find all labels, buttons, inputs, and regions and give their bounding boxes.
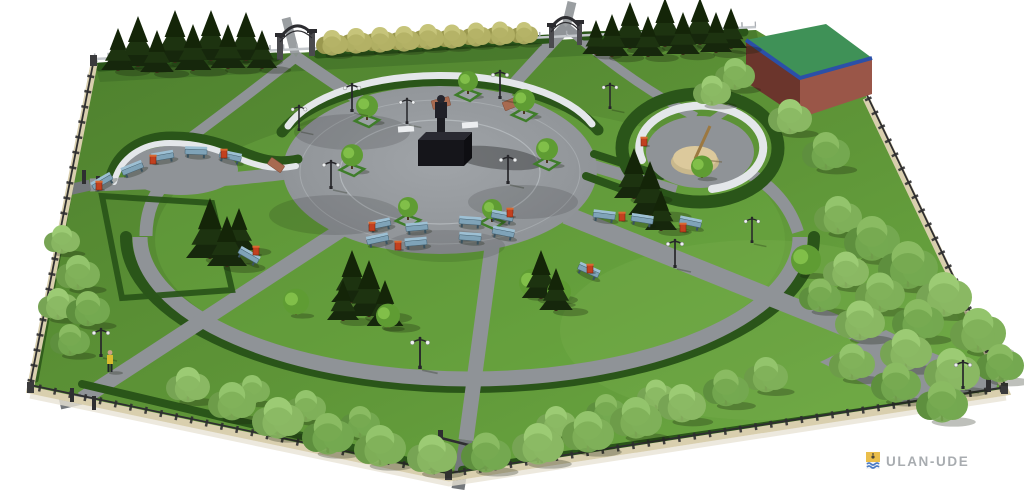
lamp-finial (351, 83, 354, 86)
tree-foliage (807, 287, 832, 312)
conifer-foliage (604, 14, 621, 36)
tree-foliage (668, 394, 697, 423)
conifer-foliage (219, 24, 237, 47)
tree-foliage (75, 300, 101, 326)
tree-foliage (262, 407, 293, 438)
east-gate-post (986, 378, 991, 392)
conifer-foliage (655, 0, 674, 23)
tree-foliage (845, 311, 875, 341)
conifer-foliage (675, 12, 692, 34)
tree-foliage (701, 83, 724, 106)
lamp-finial (499, 70, 502, 73)
tree-foliage (620, 407, 651, 438)
bin-lid (586, 264, 593, 266)
lamp-globe (304, 108, 307, 111)
tree-foliage (986, 354, 1015, 383)
lamp-globe (357, 86, 361, 90)
lamp-globe (615, 86, 618, 89)
lamp-globe (106, 331, 110, 335)
lamp-finial (330, 160, 333, 163)
pedestal-top (418, 132, 472, 140)
bin-lid (95, 181, 102, 183)
corner-pillar-north (90, 55, 97, 66)
lamp-finial (674, 239, 677, 242)
lamp-finial (100, 328, 103, 331)
conifer-foliage (128, 16, 148, 42)
conifer-foliage (589, 20, 603, 38)
statue-head (437, 95, 445, 103)
tree-foliage (322, 36, 341, 55)
tree-foliage (175, 376, 201, 402)
bench-leg (594, 217, 596, 221)
lamp-globe (399, 101, 402, 104)
bench-leg (203, 155, 205, 159)
tree-foliage (58, 332, 82, 356)
pedestal-front (418, 140, 464, 166)
bench-leg (461, 240, 463, 244)
conifer-foliage (691, 0, 709, 22)
lamp-globe (680, 242, 684, 246)
bin-lid (506, 208, 513, 210)
tree-foliage (812, 142, 841, 171)
bin-body (369, 223, 375, 231)
topiary-highlight (285, 293, 298, 306)
tree-foliage (753, 366, 779, 392)
lamp-globe (499, 158, 503, 162)
lamp-globe (322, 163, 326, 167)
bin-lid (220, 149, 227, 151)
bin-body (221, 150, 227, 158)
tree-foliage (838, 353, 866, 381)
bin-lid (679, 223, 686, 225)
bench-leg (424, 230, 426, 234)
tree-foliage (855, 227, 889, 261)
bin-lid (368, 222, 375, 224)
tree-foliage (572, 421, 603, 452)
lamp-globe (757, 220, 760, 223)
person-legs (111, 363, 113, 372)
bin-lid (618, 212, 625, 214)
corner-pillar-west (27, 382, 34, 393)
shrub-shadow (698, 177, 718, 181)
path-arch1-outside (286, 18, 296, 57)
tree-foliage (418, 30, 437, 49)
tree-foliage (522, 433, 553, 464)
tree-foliage (471, 443, 501, 473)
topiary-highlight (793, 249, 808, 264)
lamp-globe (92, 331, 96, 335)
tree-foliage (65, 264, 91, 290)
tree-foliage (961, 319, 995, 353)
gate-post (82, 170, 86, 184)
bin-lid (394, 241, 401, 243)
bench-leg (477, 241, 479, 245)
tree-foliage (364, 435, 395, 466)
watermark-text: ULAN-UDE (886, 454, 969, 469)
conifer-foliage (110, 28, 127, 50)
person-head (108, 350, 113, 355)
bench-leg (187, 154, 189, 158)
bin-body (150, 156, 156, 164)
tree-foliage (832, 261, 860, 289)
lamp-globe (412, 101, 415, 104)
conifer-foliage (708, 12, 724, 33)
bench-leg (610, 219, 612, 223)
conifer-foliage (165, 10, 186, 37)
lamp-finial (298, 105, 300, 107)
conifer-foliage (149, 30, 166, 52)
conifer-foliage (254, 30, 269, 50)
tree-foliage (417, 445, 447, 475)
topiary-highlight (693, 159, 704, 170)
lamp-finial (609, 83, 611, 85)
lamp-globe (744, 220, 747, 223)
planter-foliage-highlight (460, 74, 470, 84)
park-render-canvas: ULAN-UDE (0, 0, 1024, 491)
tree-foliage (51, 232, 73, 254)
conifer-foliage (236, 12, 255, 37)
tree-foliage (346, 34, 365, 53)
planter-foliage-highlight (515, 92, 526, 103)
bin-lid (252, 246, 259, 248)
gate-post (92, 396, 96, 410)
park-3d-render: ULAN-UDE (0, 0, 1024, 491)
lamp-globe (291, 108, 294, 111)
bin-lid (640, 137, 647, 139)
plaza-shadow-4 (385, 230, 505, 262)
bench-leg (407, 246, 409, 250)
lamp-finial (406, 98, 408, 100)
ulan-ude-crest-icon (866, 452, 880, 469)
tree-foliage (394, 32, 413, 51)
conifer-foliage (201, 10, 221, 36)
conifer-foliage (723, 8, 739, 29)
white-bench-left (398, 125, 414, 132)
bin-body (96, 182, 102, 190)
conifer-foliage (621, 2, 639, 26)
bin-body (587, 265, 593, 273)
lamp-globe (968, 363, 972, 367)
crest-soyombo-mark (871, 455, 874, 458)
tree-foliage (443, 31, 461, 49)
lamp-finial (507, 155, 510, 158)
tree-foliage (516, 28, 533, 45)
conifer-foliage (184, 24, 202, 48)
statue-torso (435, 102, 447, 118)
lamp-globe (666, 242, 670, 246)
watermark: ULAN-UDE (866, 452, 969, 469)
bin-lid (149, 155, 156, 157)
tree-foliage (370, 33, 389, 52)
bench-leg (477, 225, 479, 229)
lamp-globe (602, 86, 605, 89)
planter-foliage-highlight (538, 141, 549, 152)
white-bench-right (462, 121, 478, 128)
conifer-foliage (640, 16, 656, 37)
planter-foliage-highlight (358, 98, 369, 109)
topiary-highlight (378, 307, 390, 319)
person-legs (108, 363, 110, 372)
bin-body (395, 242, 401, 250)
tree-foliage (824, 206, 853, 235)
tree-foliage (926, 391, 957, 422)
lamp-globe (505, 73, 509, 77)
lamp-globe (426, 341, 430, 345)
planter-foliage-highlight (343, 147, 354, 158)
tree-foliage (491, 28, 509, 46)
bin-body (507, 209, 513, 217)
bench-leg (408, 231, 410, 235)
tree-foliage (881, 373, 911, 403)
lamp-globe (513, 158, 517, 162)
tree-foliage (218, 392, 247, 421)
bench-leg (423, 245, 425, 249)
bin-body (619, 213, 625, 221)
statue-legs (437, 116, 445, 132)
tree-foliage (467, 29, 485, 47)
tree-foliage (312, 423, 343, 454)
lamp-globe (410, 341, 414, 345)
planter-foliage-highlight (400, 200, 410, 210)
bin-body (680, 224, 686, 232)
tree-foliage (712, 379, 740, 407)
gate-post (70, 388, 74, 402)
bin-body (641, 138, 647, 146)
lamp-globe (343, 86, 347, 90)
bench-seat (185, 149, 207, 155)
lamp-globe (336, 163, 340, 167)
bin-body (253, 247, 259, 255)
tree-foliage (46, 296, 70, 320)
lamp-globe (491, 73, 495, 77)
lamp-finial (419, 337, 422, 340)
lamp-finial (962, 360, 965, 363)
tree-foliage (777, 108, 803, 134)
lamp-globe (954, 363, 958, 367)
person-torso (107, 355, 113, 364)
bench-leg (461, 224, 463, 228)
lamp-finial (751, 217, 753, 219)
